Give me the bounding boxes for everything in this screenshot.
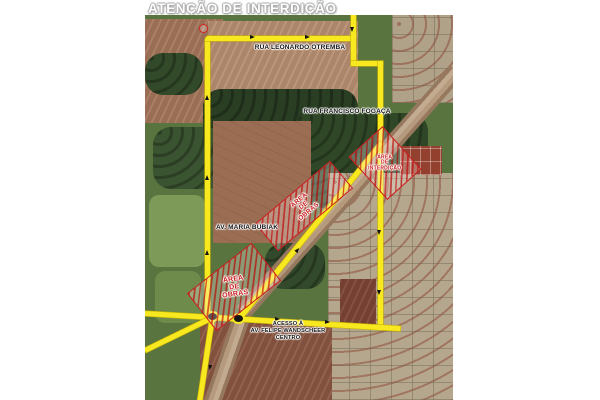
route-arrow-icon <box>305 35 310 39</box>
route-arrow-icon <box>377 290 381 295</box>
route-arrow-icon <box>350 27 354 32</box>
route-top-street <box>205 36 354 41</box>
route-arrow-icon <box>377 230 381 235</box>
page-title: ATENÇÃO DE INTERDIÇÃO <box>148 1 337 16</box>
street-label-maria-bubiak: AV. MARIA BUBIAK <box>203 224 291 231</box>
route-arrow-icon <box>250 35 255 39</box>
street-label-acesso-centro: ACESSO À AV. FELIPE WANDSCHEER CENTRO <box>245 321 331 342</box>
route-arrow-icon <box>205 175 209 180</box>
satellite-map-canvas: ÁREA DE OBRAS ÁREA DE OBRAS ÁREA DE INTE… <box>145 15 453 400</box>
zone-label-line: INTERDIÇÃO <box>368 166 401 171</box>
route-north-spur <box>351 15 356 66</box>
street-label-leonardo-otremba: RUA LEONARDO OTREMBA <box>233 44 367 51</box>
street-label-francisco-fogaca: RUA FRANCISCO FOGAÇA <box>288 108 406 115</box>
route-arrow-icon <box>205 95 209 100</box>
field-patch <box>340 279 376 327</box>
trees-patch <box>145 53 203 95</box>
route-arrow-icon <box>205 250 209 255</box>
street-label-line: ACESSO À <box>245 321 331 328</box>
no-entry-icon <box>199 24 208 33</box>
street-label-line: CENTRO <box>245 335 331 342</box>
route-arrow-icon <box>208 365 213 371</box>
street-label-line: AV. FELIPE WANDSCHEER <box>245 328 331 335</box>
meadow-patch <box>149 195 205 267</box>
interdiction-notice-map: ATENÇÃO DE INTERDIÇÃO <box>0 0 600 400</box>
